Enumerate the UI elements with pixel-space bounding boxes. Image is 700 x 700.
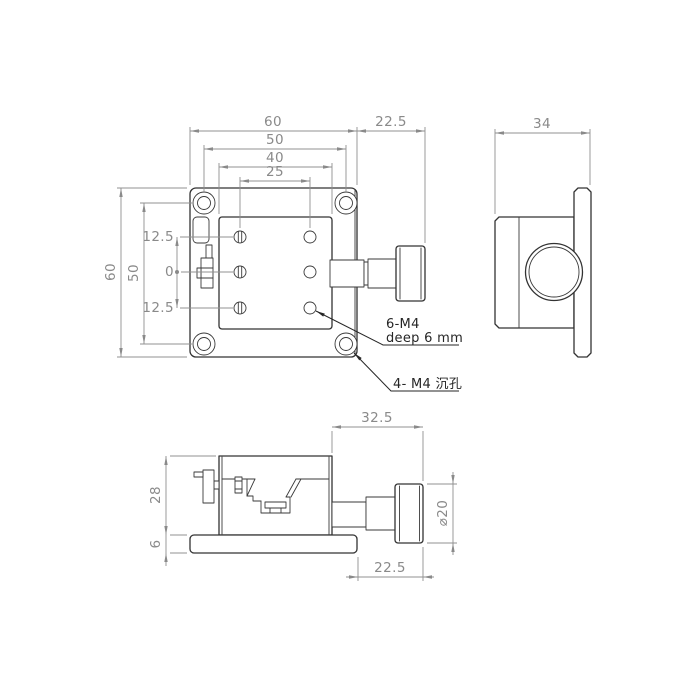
dim-front-height: 60 — [103, 263, 119, 281]
dim-side-depth: 34 — [533, 116, 551, 132]
bottom-view — [190, 456, 423, 553]
dim-bottom-body-height: 28 — [148, 486, 164, 504]
dim-front-row-upper: 12.5 — [142, 229, 174, 245]
stage-drawing-svg: 60 22.5 50 40 25 60 50 — [0, 0, 700, 700]
dim-bottom-knob-diameter: ⌀20 — [435, 500, 451, 527]
bottom-body-outline — [219, 456, 332, 535]
dim-front-row-center: 0 — [165, 264, 174, 280]
technical-drawing-page: 60 22.5 50 40 25 60 50 — [0, 0, 700, 700]
dim-front-hole-span-v: 50 — [126, 264, 142, 282]
dim-bottom-knob-length: 32.5 — [361, 410, 393, 426]
dim-front-hole-span-h: 50 — [266, 132, 284, 148]
dim-bottom-knob-clearance: 22.5 — [374, 560, 406, 576]
counterbore-note: 4- M4 沉孔 — [393, 377, 462, 392]
dim-bottom-base-height: 6 — [148, 540, 164, 549]
dim-front-knob-offset: 22.5 — [375, 114, 407, 130]
tapped-holes-note-line2: deep 6 mm — [386, 331, 463, 346]
dim-front-width: 60 — [264, 114, 282, 130]
side-view — [495, 188, 591, 357]
tapped-holes-note-line1: 6-M4 — [386, 317, 420, 332]
bottom-knob-assembly — [332, 484, 423, 543]
dim-front-row-lower: 12.5 — [142, 300, 174, 316]
bottom-base-plate — [190, 535, 357, 553]
dim-front-hole-col-span: 25 — [266, 164, 284, 180]
side-knob-inner-circle — [529, 247, 579, 297]
bottom-clamp-assembly — [194, 470, 219, 503]
